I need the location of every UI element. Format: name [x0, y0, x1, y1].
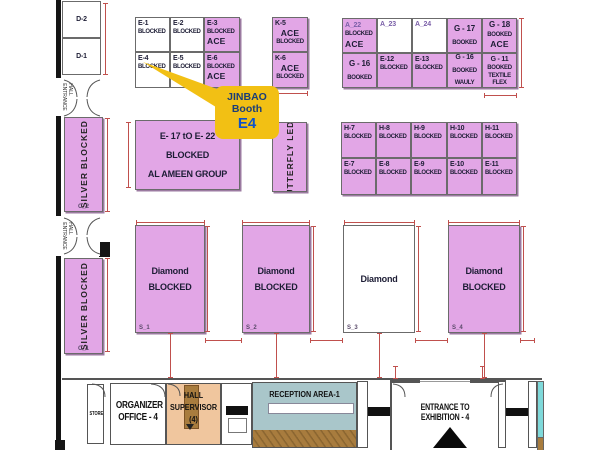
- booth-label: BLOCKED: [344, 134, 373, 141]
- booth-C_1[interactable]: SILVERBLOCKEDC_1: [64, 258, 103, 354]
- booth-A_24[interactable]: A_24: [412, 18, 447, 53]
- corridor-door: [226, 406, 248, 415]
- booth-label: BOOKED: [345, 75, 374, 82]
- booth-label: H-7: [344, 125, 373, 133]
- booth-label: BLOCKED: [275, 39, 305, 46]
- booth-label: BLOCKED: [450, 134, 479, 141]
- supervisor-line1: HALL: [170, 390, 218, 402]
- booth-label: A_23: [380, 21, 409, 29]
- booth-H-7[interactable]: H-7BLOCKED: [341, 122, 376, 158]
- dimension-line: [136, 222, 205, 223]
- booth-label: AL AMEEN GROUP: [138, 169, 237, 179]
- dimension-line: [105, 3, 106, 75]
- booth-label: H-9: [414, 125, 444, 133]
- booth-label: E-7: [344, 161, 373, 169]
- booth-label: E-5: [173, 55, 201, 63]
- booth-H-9[interactable]: H-9BLOCKED: [411, 122, 447, 158]
- booth-label: FLEX: [485, 80, 514, 87]
- hall-entrance-label: HALL ENTRANCE: [61, 83, 73, 111]
- booth-label: Diamond: [138, 266, 202, 276]
- booth-tag: S_1: [139, 325, 150, 331]
- booth-label: BLOCKED: [138, 282, 202, 292]
- booth-label: Diamond: [451, 266, 517, 276]
- booth-label: E-13: [415, 56, 444, 64]
- dimension-line: [448, 222, 520, 223]
- wall-pier: [99, 242, 110, 257]
- booth-G-16[interactable]: G - 16BOOKED: [342, 53, 377, 88]
- dimension-line: [482, 366, 483, 379]
- booth-label: BLOCKED: [275, 74, 305, 81]
- dimension-line: [205, 340, 242, 341]
- booth-E-3[interactable]: E-3BLOCKEDACE: [204, 17, 240, 52]
- organizer-office-room[interactable]: ORGANIZER OFFICE - 4: [110, 383, 166, 445]
- booth-tag: C_2: [78, 204, 89, 210]
- booth-S_4[interactable]: DiamondBLOCKEDS_4: [448, 225, 520, 333]
- entrance-top-wall: [390, 380, 420, 383]
- booth-label: G - 16: [345, 60, 374, 69]
- dimension-line: [128, 122, 129, 188]
- booth-label: E-1: [138, 20, 167, 28]
- dimension-line: [207, 226, 208, 332]
- dimension-line: [520, 340, 535, 341]
- booth-label: BLOCKED: [173, 64, 201, 71]
- booth-label: H-11: [485, 125, 514, 133]
- wall-corner: [55, 440, 65, 450]
- booth-label: BLOCKED: [415, 65, 444, 72]
- dimension-line: [170, 333, 171, 378]
- dimension-line: [379, 333, 380, 378]
- dimension-line: [313, 226, 314, 332]
- booth-label: BLOCKED: [138, 64, 167, 71]
- booth-label: E-10: [450, 161, 479, 169]
- booth-tag: C_1: [78, 346, 89, 352]
- booth-label: SILVER: [79, 314, 89, 350]
- reception-label: RECEPTION AREA-1: [258, 390, 351, 399]
- dimension-line: [484, 333, 485, 378]
- jinbao-callout[interactable]: JINBAO Booth E4: [215, 86, 279, 139]
- booth-label: BLOCKED: [379, 170, 408, 177]
- booth-label: BLOCKED: [414, 170, 444, 177]
- store-room[interactable]: STORE: [87, 384, 104, 444]
- booth-label: BLOCKED: [79, 262, 89, 311]
- booth-E-10[interactable]: E-10BLOCKED: [447, 158, 482, 195]
- supervisor-line2: SUPERVISOR: [170, 402, 218, 414]
- entrance-hall[interactable]: ENTRANCE TO EXHIBITION - 4: [390, 380, 498, 450]
- entrance-right-wall: [498, 381, 506, 448]
- booth-D-1[interactable]: D-1: [62, 38, 101, 75]
- booth-E-2[interactable]: E-2BLOCKED: [170, 17, 204, 52]
- booth-A_22[interactable]: A_22BLOCKEDACE: [342, 18, 377, 53]
- booth-label: ACE: [275, 64, 305, 74]
- booth-label: BUTTERFLY: [285, 144, 295, 192]
- booth-label: ACE: [485, 40, 514, 50]
- supervisor-line3: (4): [170, 414, 218, 426]
- booth-label: BLOCKED: [450, 170, 479, 177]
- dimension-line: [395, 366, 396, 379]
- booth-label: G - 16: [450, 54, 479, 62]
- booth-label: G - 17: [450, 25, 479, 34]
- dimension-line: [344, 222, 415, 223]
- booth-label: BLOCKED: [414, 134, 444, 141]
- booth-label: BOOKED: [450, 40, 479, 47]
- organizer-office-line1: ORGANIZER: [116, 400, 160, 412]
- booth-K-6[interactable]: K-6ACEBLOCKED: [272, 52, 308, 88]
- booth-label: BLOCKED: [207, 64, 237, 71]
- booth-G-16-WAULY[interactable]: G - 16BOOKEDWAULY: [447, 53, 482, 88]
- reception-counter: [268, 403, 354, 414]
- booth-label: E-9: [414, 161, 444, 169]
- hall-entrance-1[interactable]: HALL ENTRANCE: [62, 78, 100, 116]
- booth-E-7[interactable]: E-7BLOCKED: [341, 158, 376, 195]
- booth-D-2[interactable]: D-2: [62, 1, 101, 38]
- organizer-office-line2: OFFICE - 4: [116, 412, 160, 424]
- dimension-line: [523, 226, 524, 332]
- booth-label: H-10: [450, 125, 479, 133]
- booth-H-10[interactable]: H-10BLOCKED: [447, 122, 482, 158]
- booth-E-11[interactable]: E-11BLOCKED: [482, 158, 517, 195]
- wall-connector: [506, 408, 528, 416]
- booth-label: BLOCKED: [138, 29, 167, 36]
- booth-rotated-label: BUTTERFLYLED: [285, 122, 295, 192]
- booth-label: ACE: [207, 72, 237, 82]
- booth-label: BLOCKED: [345, 31, 374, 38]
- booth-rotated-label: SILVERBLOCKED: [79, 262, 89, 350]
- dimension-line: [310, 340, 343, 341]
- booth-label: A_22: [345, 22, 374, 30]
- booth-tag: S_3: [347, 325, 358, 331]
- entrance-label: ENTRANCE TO EXHIBITION - 4: [404, 402, 487, 422]
- reception-wood-floor: [253, 430, 356, 447]
- dimension-line: [107, 118, 108, 212]
- booth-label: G - 18: [485, 21, 514, 30]
- booth-label: Diamond: [245, 266, 307, 276]
- booth-label: LED: [285, 122, 295, 141]
- hall-supervisor-room[interactable]: HALL SUPERVISOR (4): [166, 383, 221, 445]
- booth-label: BLOCKED: [207, 29, 237, 36]
- booth-label: BLOCKED: [138, 150, 237, 160]
- booth-S_3[interactable]: DiamondS_3: [343, 225, 415, 333]
- hall-entrance-label: HALL ENTRANCE: [61, 222, 73, 250]
- booth-E-5[interactable]: E-5BLOCKED: [170, 52, 204, 88]
- dimension-line: [484, 95, 517, 96]
- booth-E-13[interactable]: E-13BLOCKED: [412, 53, 447, 88]
- booth-label: A_24: [415, 21, 444, 29]
- wall-left-top: [56, 0, 61, 78]
- booth-label: BLOCKED: [79, 120, 89, 169]
- booth-label: E-12: [380, 56, 409, 64]
- wall-connector: [368, 407, 390, 416]
- booth-rotated-label: SILVERBLOCKED: [79, 120, 89, 208]
- callout-booth-word: Booth: [232, 104, 262, 116]
- booth-label: E-8: [379, 161, 408, 169]
- booth-label: TEXTILE: [485, 73, 514, 80]
- booth-G-17[interactable]: G - 17BOOKED: [447, 18, 482, 53]
- booth-H-8[interactable]: H-8BLOCKED: [376, 122, 411, 158]
- booth-E-1[interactable]: E-1BLOCKED: [135, 17, 170, 52]
- booth-label: BLOCKED: [485, 170, 514, 177]
- wall-left-bottom: [56, 256, 61, 450]
- booth-label: BLOCKED: [380, 65, 409, 72]
- pillar: [528, 381, 537, 448]
- dimension-line: [242, 222, 310, 223]
- booth-E-6[interactable]: E-6BLOCKEDACE: [204, 52, 240, 88]
- booth-E-9[interactable]: E-9BLOCKED: [411, 158, 447, 195]
- booth-label: G - 11: [485, 56, 514, 64]
- booth-E-8[interactable]: E-8BLOCKED: [376, 158, 411, 195]
- booth-K-5[interactable]: K-5ACEBLOCKED: [272, 17, 308, 52]
- store-label: STORE: [90, 411, 102, 417]
- reception-area[interactable]: RECEPTION AREA-1: [252, 382, 357, 448]
- booth-label: BLOCKED: [379, 134, 408, 141]
- booth-G-11[interactable]: G - 11BOOKEDTEXTILEFLEX: [482, 53, 517, 88]
- entrance-door-line: [420, 381, 470, 382]
- booth-S_1[interactable]: DiamondBLOCKEDS_1: [135, 225, 205, 333]
- dimension-line: [521, 18, 522, 88]
- wood-wall-strip: [537, 437, 544, 450]
- booth-C_2[interactable]: SILVERBLOCKEDC_2: [64, 117, 103, 212]
- booth-label: ACE: [275, 29, 305, 39]
- booth-label: ACE: [345, 40, 374, 50]
- entrance-arrow-icon: [433, 427, 467, 448]
- booth-S_2[interactable]: DiamondBLOCKEDS_2: [242, 225, 310, 333]
- booth-label: BLOCKED: [245, 282, 307, 292]
- booth-label: D-1: [65, 53, 98, 61]
- booth-label: BLOCKED: [344, 170, 373, 177]
- booth-label: BOOKED: [450, 68, 479, 75]
- booth-A_23[interactable]: A_23: [377, 18, 412, 53]
- booth-tag: S_4: [452, 325, 463, 331]
- teal-wall-strip: [537, 381, 544, 439]
- dimension-line: [107, 258, 108, 352]
- booth-label: K-6: [275, 55, 305, 63]
- booth-E-12[interactable]: E-12BLOCKED: [377, 53, 412, 88]
- corridor-fixture: [228, 418, 247, 433]
- booth-label: E-4: [138, 55, 167, 63]
- booth-label: BLOCKED: [485, 134, 514, 141]
- booth-label: BLOCKED: [173, 29, 201, 36]
- wall-left-mid: [56, 116, 61, 216]
- booth-E-4[interactable]: E-4BLOCKED: [135, 52, 170, 88]
- booth-label: K-5: [275, 20, 305, 28]
- booth-H-11[interactable]: H-11BLOCKED: [482, 122, 517, 158]
- booth-G-18[interactable]: G - 18BOOKEDACE: [482, 18, 517, 53]
- pillar: [357, 381, 368, 448]
- booth-tag: S_2: [246, 325, 257, 331]
- hall-entrance-2[interactable]: HALL ENTRANCE: [62, 216, 100, 256]
- booth-label: ACE: [207, 37, 237, 47]
- booth-label: E-11: [485, 161, 514, 169]
- callout-booth-id: E4: [238, 116, 256, 133]
- booth-label: E-3: [207, 20, 237, 28]
- booth-label: BLOCKED: [451, 282, 517, 292]
- dimension-line: [418, 226, 419, 332]
- booth-label: Diamond: [346, 274, 412, 284]
- booth-label: H-8: [379, 125, 408, 133]
- booth-label: WAULY: [450, 80, 479, 87]
- booth-label: BOOKED: [485, 32, 514, 39]
- exhibition-floor-plan: HALL ENTRANCE HALL ENTRANCE D-2D-1SILVER…: [0, 0, 600, 450]
- booth-label: E-2: [173, 20, 201, 28]
- booth-label: BOOKED: [485, 65, 514, 72]
- booth-label: D-2: [65, 16, 98, 24]
- dimension-line: [276, 333, 277, 378]
- booth-label: E-6: [207, 55, 237, 63]
- dimension-line: [415, 340, 448, 341]
